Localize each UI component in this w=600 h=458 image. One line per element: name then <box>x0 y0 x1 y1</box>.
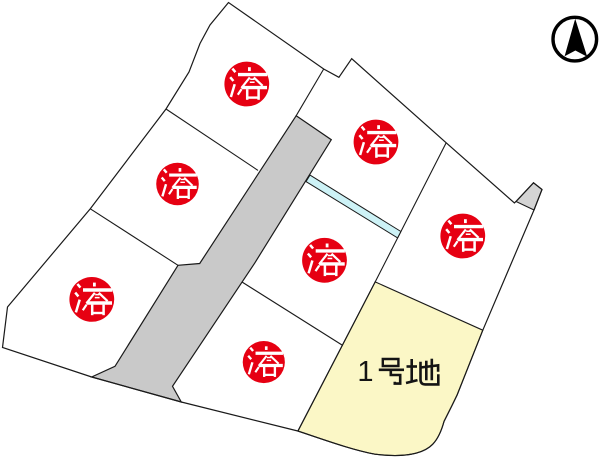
svg-text:1: 1 <box>357 356 373 388</box>
